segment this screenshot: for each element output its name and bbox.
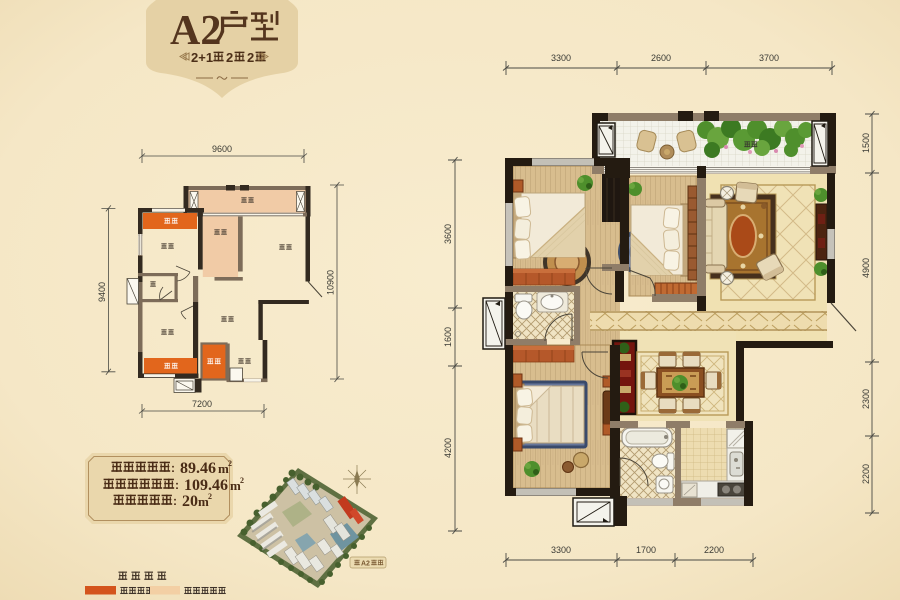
svg-text:A2: A2 bbox=[170, 8, 221, 54]
svg-text:2: 2 bbox=[240, 476, 244, 485]
svg-text:2200: 2200 bbox=[704, 545, 724, 555]
svg-text:1600: 1600 bbox=[443, 327, 453, 347]
svg-text:3300: 3300 bbox=[551, 545, 571, 555]
svg-text:4900: 4900 bbox=[861, 258, 871, 278]
svg-text:3700: 3700 bbox=[759, 53, 779, 63]
svg-text:2: 2 bbox=[208, 492, 212, 501]
svg-text::: : bbox=[175, 478, 179, 492]
svg-text:109.46: 109.46 bbox=[184, 477, 228, 494]
svg-text:20: 20 bbox=[182, 493, 198, 510]
svg-text:3600: 3600 bbox=[443, 224, 453, 244]
svg-text:A2: A2 bbox=[361, 561, 370, 568]
svg-text:89.46: 89.46 bbox=[180, 460, 216, 477]
svg-text:2+1: 2+1 bbox=[191, 50, 213, 65]
svg-text:9400: 9400 bbox=[97, 282, 107, 302]
svg-text:10900: 10900 bbox=[326, 270, 336, 295]
svg-text:3300: 3300 bbox=[551, 53, 571, 63]
svg-text:2600: 2600 bbox=[651, 53, 671, 63]
svg-text:7200: 7200 bbox=[192, 399, 212, 409]
svg-text:2300: 2300 bbox=[861, 389, 871, 409]
svg-text:2: 2 bbox=[226, 50, 233, 65]
svg-text:1500: 1500 bbox=[861, 133, 871, 153]
svg-text:2: 2 bbox=[228, 459, 232, 468]
svg-text::: : bbox=[173, 494, 177, 508]
svg-text:1700: 1700 bbox=[636, 545, 656, 555]
svg-text:9600: 9600 bbox=[212, 144, 232, 154]
svg-text:2: 2 bbox=[247, 50, 254, 65]
svg-text::: : bbox=[171, 461, 175, 475]
svg-text:4200: 4200 bbox=[443, 438, 453, 458]
svg-text:2200: 2200 bbox=[861, 464, 871, 484]
